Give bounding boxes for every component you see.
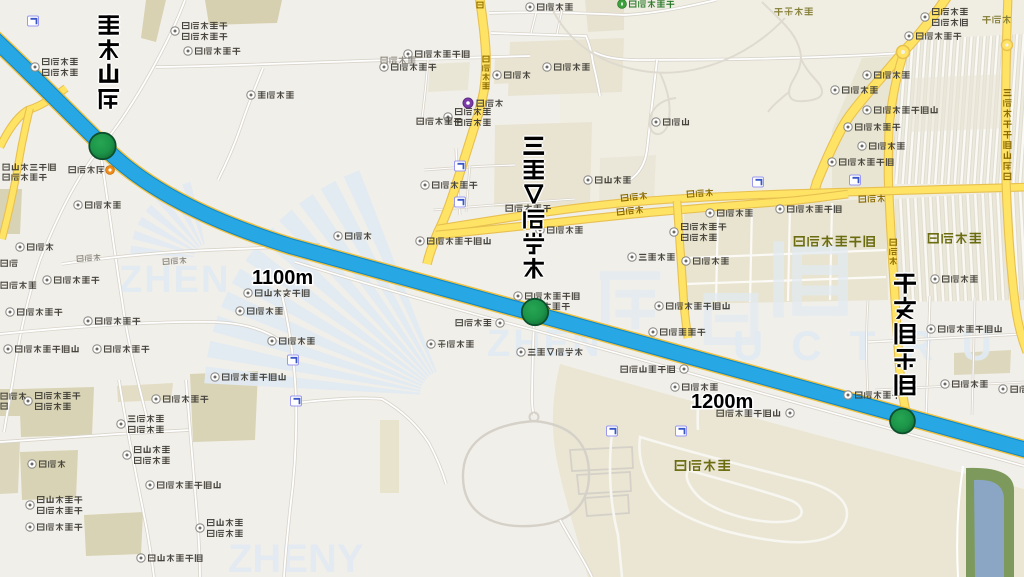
svg-text:1100m: 1100m [252, 267, 313, 289]
svg-text:ZHEN: ZHEN [119, 259, 230, 301]
svg-text:1200m: 1200m [691, 391, 753, 413]
svg-text:ZHENY: ZHENY [228, 537, 364, 577]
